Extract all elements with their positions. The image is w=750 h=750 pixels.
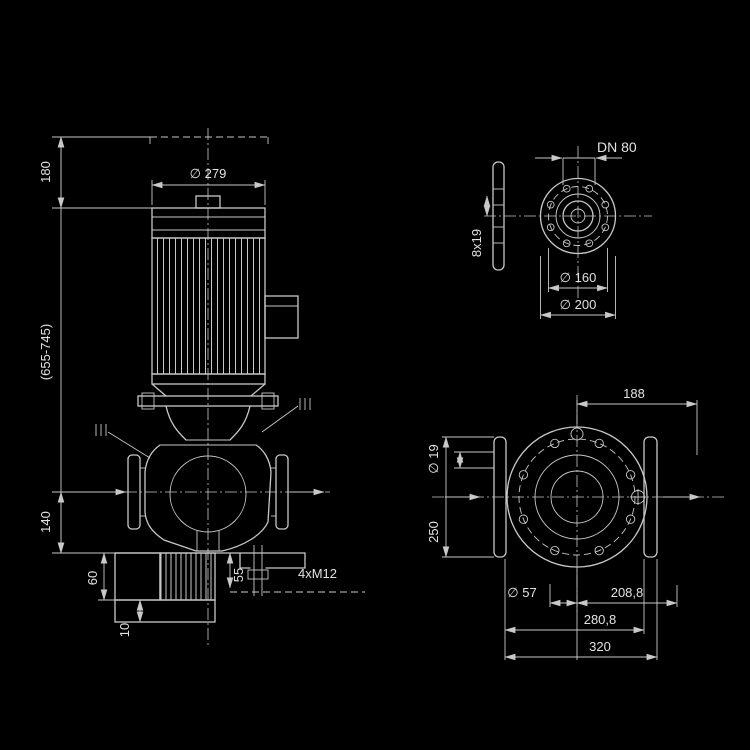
dim-nominal-diameter: DN 80 (597, 139, 637, 155)
dim-flange-holes: 8x19 (469, 229, 484, 257)
dim-overall-width: 320 (589, 639, 611, 654)
foot-left (115, 553, 160, 600)
dim-volute-offset: ∅ 57 (507, 585, 536, 600)
plan-view: 188 ∅ 19 250 ∅ 57 208,8 (426, 386, 724, 660)
base-foot (115, 545, 365, 622)
anchor-nut (248, 570, 268, 579)
motor (152, 196, 298, 374)
dimensions-left: 180 (655-745) 140 (38, 137, 152, 553)
dim-overall-height: (655-745) (38, 324, 53, 380)
base-plate (115, 600, 215, 622)
dim-flange-height: 250 (426, 521, 441, 543)
dim-hole-diameter: ∅ 19 (426, 444, 441, 473)
pump-dimension-drawing: 180 (655-745) 140 ∅ 279 60 10 55 4xM12 (0, 0, 750, 750)
foot-right (240, 553, 305, 568)
flange-view: 8x19 DN 80 ∅ 160 ∅ 200 (469, 139, 652, 319)
dim-bolt-circle: ∅ 160 (560, 270, 597, 285)
dim-foot-edge: 55 (231, 568, 246, 582)
dim-port-height: 140 (38, 511, 53, 533)
pedestal (160, 553, 215, 600)
motor-fins (152, 238, 265, 374)
clearance-dash-line (150, 137, 268, 147)
drawing-canvas: 180 (655-745) 140 ∅ 279 60 10 55 4xM12 (0, 0, 750, 750)
dim-top-clearance: 180 (38, 161, 53, 183)
label-mounting-holes: 4xM12 (298, 566, 337, 581)
motor-top-cap (152, 208, 265, 238)
dim-motor-diameter: ∅ 279 (190, 166, 227, 181)
dimensions-plan-bottom: ∅ 57 208,8 280,8 320 (505, 559, 677, 660)
dimension-nominal: DN 80 (535, 139, 637, 185)
dimension-motor-diameter: ∅ 279 (152, 166, 265, 205)
terminal-box (265, 296, 298, 338)
dim-center-to-edge: 208,8 (611, 585, 644, 600)
surface-marks (96, 398, 310, 458)
dim-flange-span: 280,8 (584, 612, 617, 627)
dim-plate-thickness: 10 (117, 623, 132, 637)
dim-outer-diameter: ∅ 200 (560, 297, 597, 312)
dim-foot-height: 60 (85, 571, 100, 585)
dim-upper-width: 188 (623, 386, 645, 401)
main-view-side-elevation: 180 (655-745) 140 ∅ 279 60 10 55 4xM12 (38, 128, 365, 648)
